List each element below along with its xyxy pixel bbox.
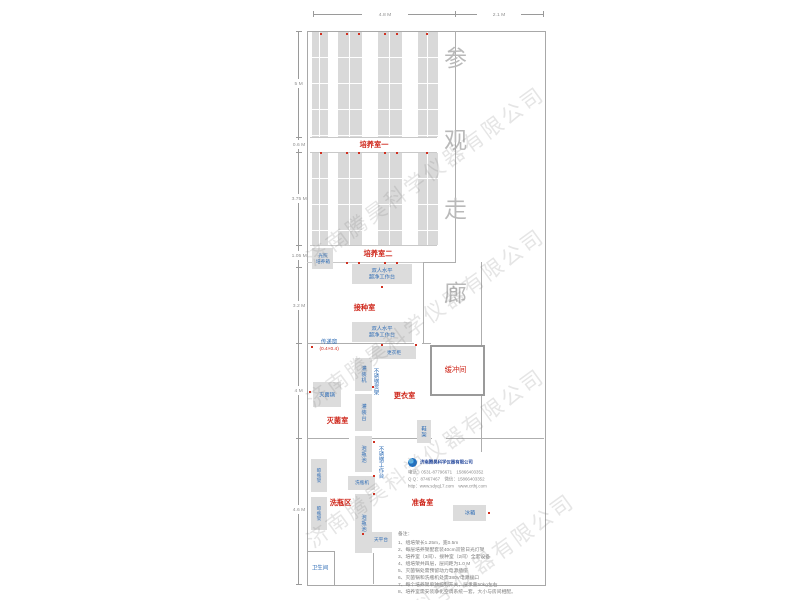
band-line xyxy=(310,245,437,246)
room-label-inoculation: 接种室 xyxy=(343,302,387,315)
room-label-buffer: 缓冲间 xyxy=(432,364,480,377)
dim-tick xyxy=(296,137,302,138)
dim-tick xyxy=(296,267,302,268)
marker-dot xyxy=(358,262,360,264)
marker-dot xyxy=(311,346,313,348)
marker-dot xyxy=(426,33,428,35)
marker-dot xyxy=(373,441,375,443)
corridor-label-char3: 走 xyxy=(444,199,467,222)
marker-dot xyxy=(426,152,428,154)
culture-rack xyxy=(418,153,438,245)
room-label-sterilization: 灭菌室 xyxy=(318,415,358,428)
marker-dot xyxy=(396,262,398,264)
wall-mid-c xyxy=(446,438,544,439)
marker-dot xyxy=(396,152,398,154)
wall-inoculation-south-b xyxy=(422,343,431,344)
dim-tick xyxy=(296,31,302,32)
marker-dot xyxy=(320,152,322,154)
room-label-preparation: 准备室 xyxy=(402,497,444,510)
corridor-label-char1: 参 xyxy=(444,48,467,71)
equipment-sterilizer: 灭菌锅 xyxy=(313,382,341,407)
marker-dot xyxy=(358,33,360,35)
marker-dot xyxy=(373,493,375,495)
marker-dot xyxy=(381,344,383,346)
equipment-ss-bench: 不锈钢工作台 xyxy=(375,446,387,496)
dim-tick xyxy=(296,343,302,344)
wall-jog xyxy=(423,262,456,263)
equipment-drying-rack-2: 晾瓶架 xyxy=(311,497,327,530)
dim-tick xyxy=(455,11,456,17)
marker-dot xyxy=(309,391,311,393)
marker-dot xyxy=(372,386,374,388)
wall-mid-a xyxy=(307,438,349,439)
equipment-balance-table: 天平台 xyxy=(370,532,392,548)
dim-tick xyxy=(296,438,302,439)
dim-tick xyxy=(296,245,302,246)
note-item: 8、培养室需安装净化空调系统一套，大小与房间相配。 xyxy=(398,588,594,599)
company-logo-icon xyxy=(408,458,417,467)
floorplan-canvas: 4.8 M 2.1 M 5 M 0.6 M 3.75 M 1.05 M 3.2 … xyxy=(0,0,800,600)
equipment-clean-bench-1: 双人水平超净工作台 xyxy=(352,264,412,284)
marker-dot xyxy=(358,152,360,154)
marker-dot xyxy=(346,152,348,154)
dim-tick xyxy=(296,584,302,585)
dim-tick xyxy=(313,11,314,17)
marker-dot xyxy=(362,533,364,535)
culture-rack xyxy=(312,32,328,137)
marker-dot xyxy=(346,33,348,35)
wall-corridor-mid xyxy=(423,262,424,344)
dim-top-21: 2.1 M xyxy=(477,10,521,19)
culture-rack xyxy=(418,32,438,137)
marker-dot xyxy=(373,475,375,477)
dim-top-48: 4.8 M xyxy=(362,10,408,19)
room-label-changing: 更衣室 xyxy=(385,390,425,403)
equipment-bottle-washer: 洗瓶机 xyxy=(348,476,375,490)
marker-dot xyxy=(346,262,348,264)
culture-rack xyxy=(378,153,402,245)
equipment-wardrobe: 更衣柜 xyxy=(372,346,416,359)
dim-tick xyxy=(296,152,302,153)
culture-rack xyxy=(378,32,402,137)
room-label-toilet: 卫生间 xyxy=(304,564,336,575)
room-label-culture2: 培养室二 xyxy=(346,248,410,261)
equipment-clean-bench-2: 双人水平超净工作台 xyxy=(352,322,412,342)
equipment-soak-pool-1: 泡瓶池 xyxy=(355,436,372,472)
equipment-light-incubator: 光照培养箱 xyxy=(312,248,333,269)
equipment-filling-table: 灌装台 xyxy=(355,394,372,431)
corridor-label-char2: 观 xyxy=(444,130,467,153)
equipment-drying-rack-1: 晾瓶架 xyxy=(311,459,327,492)
marker-dot xyxy=(396,33,398,35)
dim-tick xyxy=(543,11,544,17)
wall-bottom-stub xyxy=(373,553,374,584)
marker-dot xyxy=(488,512,490,514)
culture-rack xyxy=(312,153,328,245)
transfer-window-size: (0.4×0.4) xyxy=(310,346,348,355)
band-line xyxy=(310,137,437,138)
equipment-shoe-rack: 鞋架 xyxy=(417,420,431,443)
room-label-culture1: 培养室一 xyxy=(342,139,406,152)
marker-dot xyxy=(320,33,322,35)
corridor-label-char4: 廊 xyxy=(444,283,467,306)
marker-dot xyxy=(384,33,386,35)
equipment-fridge: 冰箱 xyxy=(453,505,486,521)
marker-dot xyxy=(381,286,383,288)
marker-dot xyxy=(415,344,417,346)
marker-dot xyxy=(384,152,386,154)
marker-dot xyxy=(384,262,386,264)
culture-rack xyxy=(338,153,362,245)
culture-rack xyxy=(338,32,362,137)
company-web: http：www.sdyq17.com www.crthj.com xyxy=(408,483,551,494)
